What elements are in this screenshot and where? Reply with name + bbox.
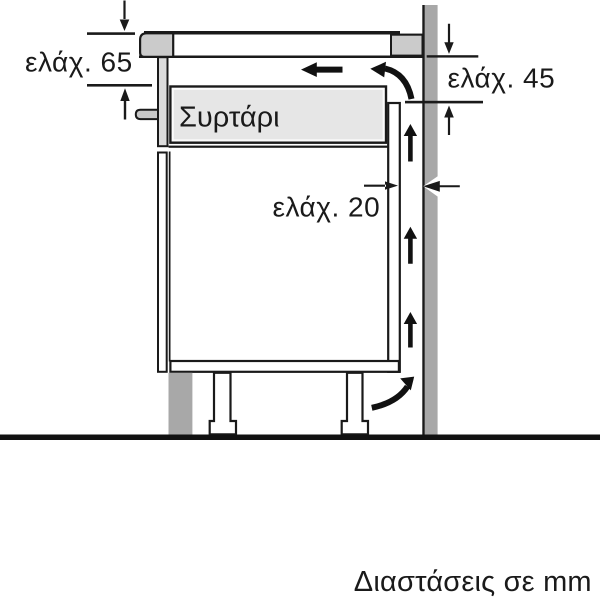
svg-text:Διαστάσεις σε mm: Διαστάσεις σε mm bbox=[354, 566, 592, 598]
svg-text:ελάχ. 65: ελάχ. 65 bbox=[25, 47, 133, 78]
svg-text:Συρτάρι: Συρτάρι bbox=[179, 102, 280, 134]
svg-text:ελάχ. 45: ελάχ. 45 bbox=[448, 63, 556, 94]
svg-text:ελάχ. 20: ελάχ. 20 bbox=[273, 192, 381, 223]
